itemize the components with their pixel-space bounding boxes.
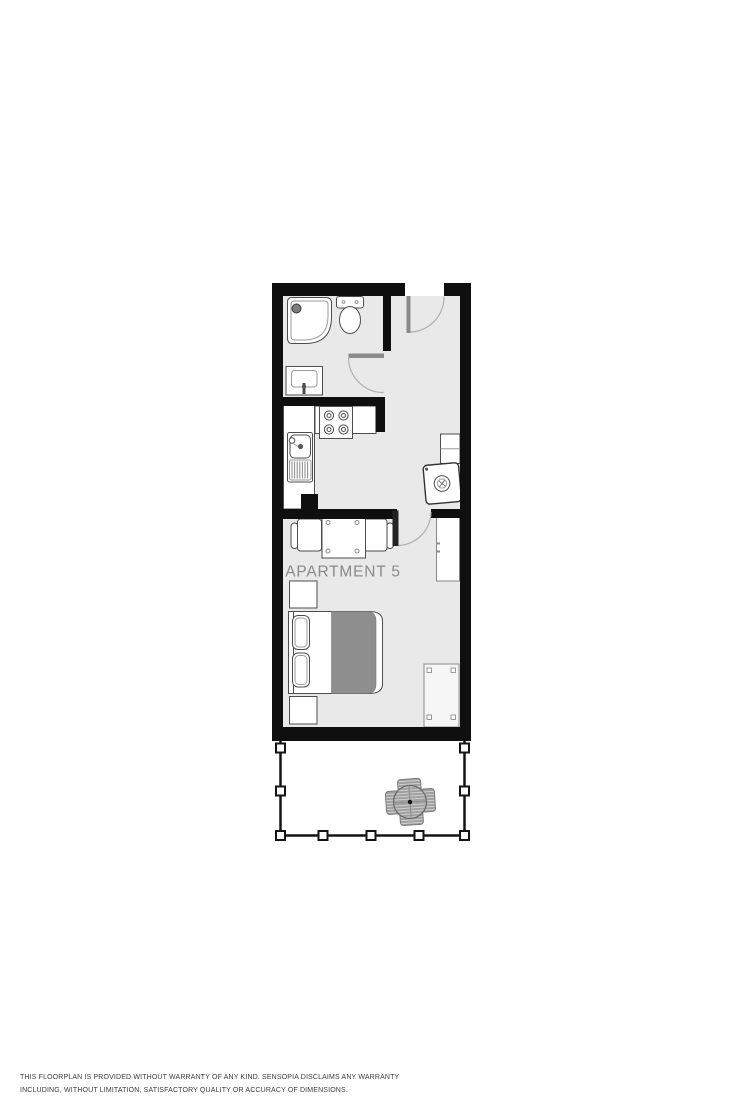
wall-bottom: [272, 727, 471, 741]
terrace: [276, 741, 469, 840]
wall-right: [460, 283, 471, 741]
bed-duvet: [332, 612, 377, 694]
dining-chair-left: [291, 519, 322, 551]
sink-tap-icon: [289, 438, 295, 444]
wall-cabinet: [441, 434, 461, 464]
stove: [320, 407, 353, 439]
wall-bathroom-south: [283, 397, 385, 406]
wall-divider: [283, 509, 397, 519]
desk: [424, 664, 459, 727]
nightstand-bottom: [290, 697, 318, 725]
shower-head-icon: [292, 304, 301, 313]
bathroom-door-leaf: [349, 354, 385, 359]
apartment-label: APARTMENT 5: [285, 564, 401, 581]
sink-drain-icon: [298, 444, 303, 449]
wall-bathroom-east: [383, 296, 391, 351]
entry-door-leaf: [407, 296, 411, 333]
double-bed: [289, 612, 383, 694]
washing-machine: [423, 463, 462, 505]
bedroom-door-leaf: [393, 511, 399, 547]
railing-posts: [276, 744, 469, 841]
nightstand-top: [290, 581, 318, 608]
wall-top-left: [272, 283, 405, 296]
patio-set: [384, 777, 436, 826]
wall-divider-stub: [301, 494, 318, 510]
washbasin: [286, 367, 323, 396]
dining-chair-right: [364, 519, 394, 551]
dining-table: [322, 515, 366, 559]
kitchen-sink: [288, 433, 313, 483]
drainer-lines: [292, 462, 308, 479]
floorplan-drawing: APARTMENT 5: [0, 0, 747, 1120]
wall-left: [272, 283, 283, 741]
disclaimer-line-2: INCLUDING, WITHOUT LIMITATION, SATISFACT…: [20, 1085, 400, 1098]
floorplan-page: APARTMENT 5 THIS FLOORPLAN IS PROVIDED W…: [0, 0, 747, 1120]
corner-shower: [288, 298, 332, 344]
disclaimer-line-1: THIS FLOORPLAN IS PROVIDED WITHOUT WARRA…: [20, 1072, 400, 1085]
wall-kitchen-east: [376, 397, 386, 432]
terrace-railing: [281, 741, 465, 836]
wall-bedroom-door-side: [431, 509, 460, 518]
wardrobe: [437, 518, 460, 582]
disclaimer-text: THIS FLOORPLAN IS PROVIDED WITHOUT WARRA…: [20, 1072, 400, 1097]
